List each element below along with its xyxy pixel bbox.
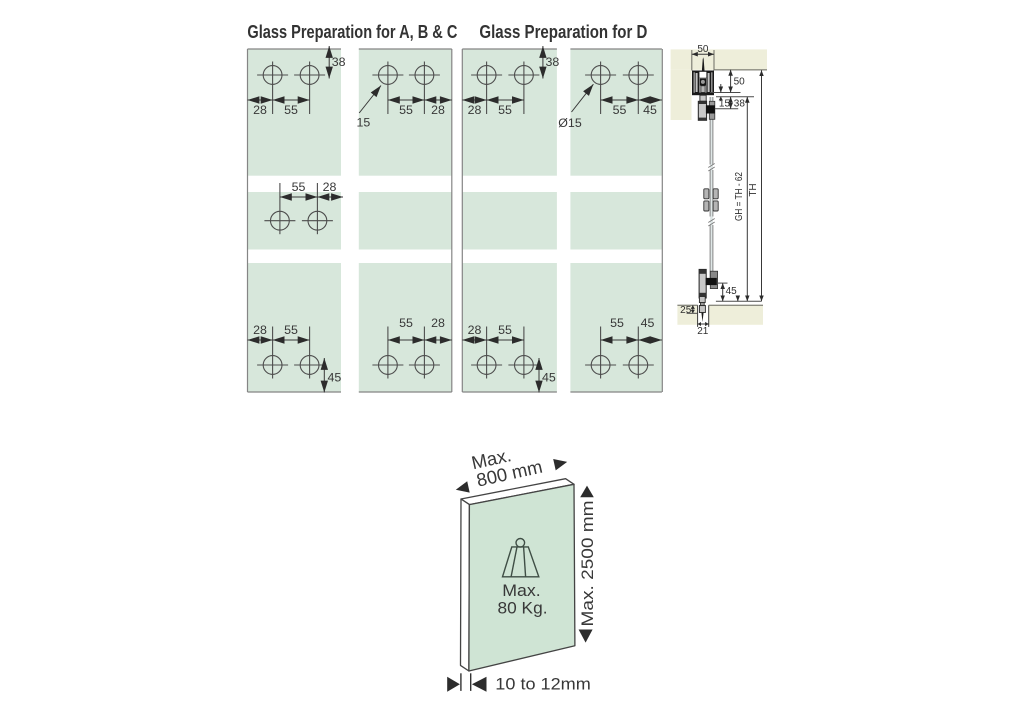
- svg-text:Ø15: Ø15: [558, 116, 582, 130]
- svg-text:55: 55: [613, 103, 627, 117]
- svg-text:80 Kg.: 80 Kg.: [498, 599, 548, 618]
- svg-text:Glass Preparation for A, B & C: Glass Preparation for A, B & C: [247, 21, 457, 42]
- svg-text:15: 15: [357, 115, 371, 129]
- svg-text:GH = TH - 62: GH = TH - 62: [734, 172, 745, 221]
- svg-text:55: 55: [284, 323, 298, 337]
- svg-text:50: 50: [734, 77, 746, 88]
- svg-text:Glass Preparation for D: Glass Preparation for D: [479, 21, 647, 42]
- svg-text:28: 28: [431, 316, 445, 330]
- svg-text:28: 28: [323, 180, 337, 194]
- svg-text:28: 28: [468, 323, 482, 337]
- svg-text:38: 38: [332, 55, 346, 69]
- svg-text:55: 55: [399, 103, 413, 117]
- svg-text:55: 55: [292, 180, 306, 194]
- svg-text:38: 38: [546, 55, 560, 69]
- svg-text:55: 55: [498, 323, 512, 337]
- svg-text:55: 55: [498, 103, 512, 117]
- svg-text:50: 50: [697, 44, 709, 55]
- svg-text:55: 55: [610, 316, 624, 330]
- svg-text:38: 38: [734, 99, 746, 110]
- svg-text:55: 55: [399, 316, 413, 330]
- svg-text:TH: TH: [748, 183, 759, 196]
- svg-text:45: 45: [328, 371, 342, 385]
- svg-text:45: 45: [542, 371, 556, 385]
- svg-text:28: 28: [253, 103, 267, 117]
- svg-text:45: 45: [641, 316, 655, 330]
- svg-text:15: 15: [719, 98, 731, 109]
- svg-text:55: 55: [284, 103, 298, 117]
- svg-text:25: 25: [680, 305, 692, 316]
- svg-text:10 to 12mm: 10 to 12mm: [495, 675, 591, 694]
- svg-text:Max. 2500 mm: Max. 2500 mm: [579, 501, 597, 627]
- svg-text:28: 28: [468, 103, 482, 117]
- svg-text:Max.: Max.: [502, 581, 541, 600]
- svg-text:45: 45: [643, 103, 657, 117]
- svg-text:45: 45: [726, 286, 738, 297]
- svg-text:21: 21: [697, 326, 709, 337]
- svg-text:28: 28: [431, 103, 445, 117]
- svg-text:28: 28: [253, 323, 267, 337]
